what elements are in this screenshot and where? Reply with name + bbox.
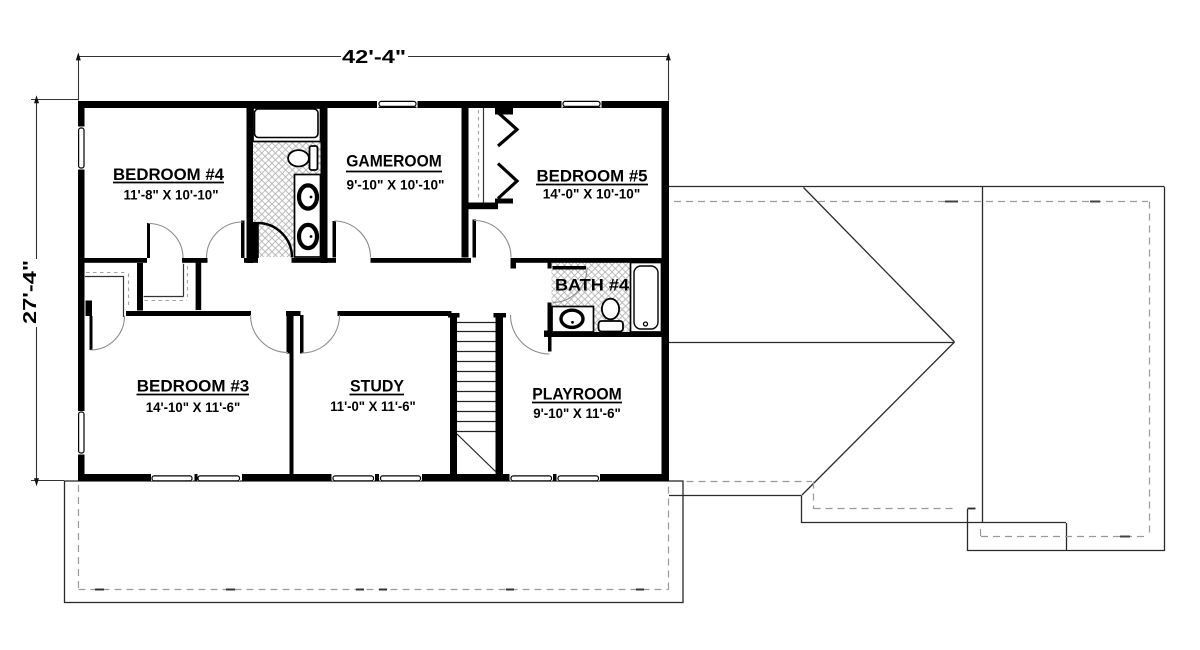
svg-text:42'-4": 42'-4" [342,47,406,67]
svg-text:14'-10" X 11'-6": 14'-10" X 11'-6" [146,399,241,415]
svg-text:PLAYROOM: PLAYROOM [532,385,622,404]
svg-text:27'-4": 27'-4" [20,260,40,324]
svg-text:GAMEROOM: GAMEROOM [346,152,442,171]
svg-text:BATH #4: BATH #4 [555,276,630,295]
svg-text:9'-10" X 11'-6": 9'-10" X 11'-6" [533,405,621,421]
svg-text:STUDY: STUDY [350,377,405,396]
svg-text:14'-0" X 10'-10": 14'-0" X 10'-10" [543,186,641,202]
svg-text:11'-0" X 11'-6": 11'-0" X 11'-6" [330,398,416,414]
svg-text:BEDROOM #4: BEDROOM #4 [113,165,225,184]
svg-text:BEDROOM #5: BEDROOM #5 [537,167,648,186]
svg-text:9'-10" X 10'-10": 9'-10" X 10'-10" [347,177,445,193]
svg-text:11'-8" X 10'-10": 11'-8" X 10'-10" [124,187,219,203]
svg-text:BEDROOM #3: BEDROOM #3 [137,377,250,396]
